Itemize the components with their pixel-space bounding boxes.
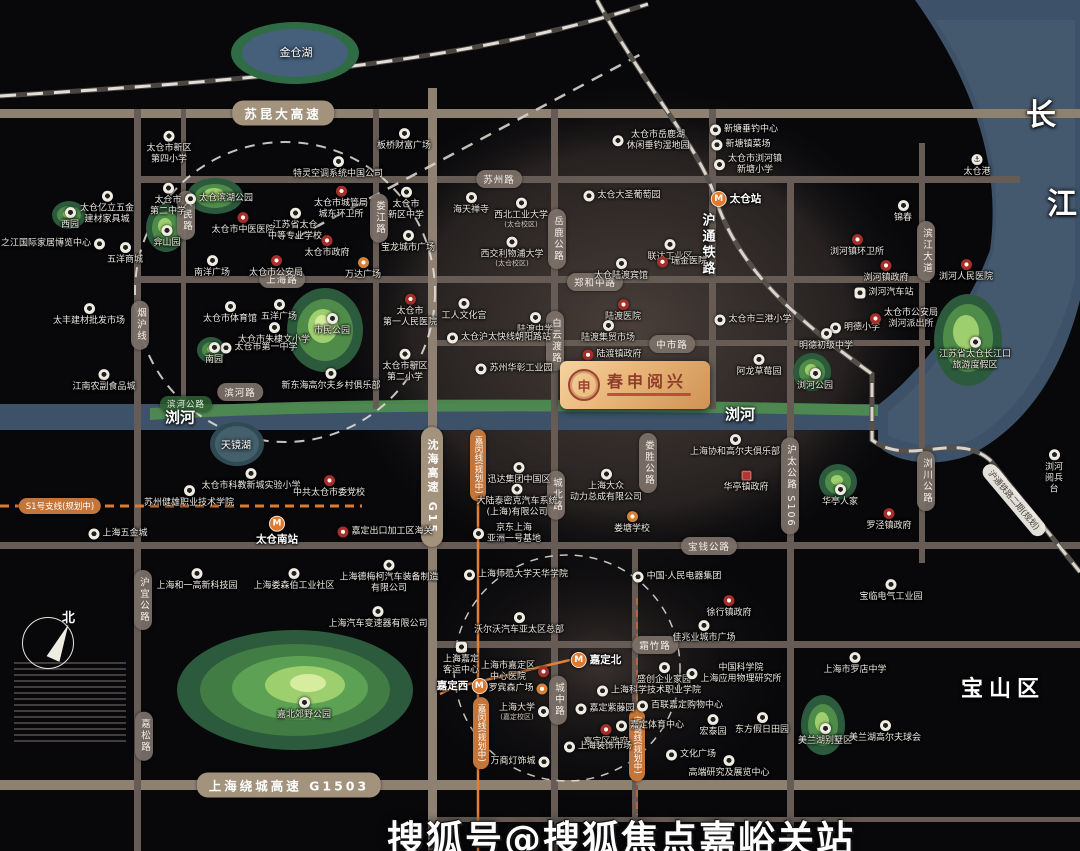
map-poi: 新塘垂钓中心 <box>710 125 778 136</box>
place-marker-icon <box>1049 449 1060 460</box>
place-marker-icon <box>245 468 256 479</box>
poi-label: 嘉定出口加工区海关 <box>351 527 432 538</box>
area-label: 宝山区 <box>961 671 1045 703</box>
poi-label: 南园 <box>205 355 223 366</box>
poi-label: 浏河公园 <box>797 381 833 392</box>
government-marker-icon <box>723 595 734 606</box>
poi-label: 海天禅寺 <box>453 205 489 216</box>
place-marker-icon <box>119 242 130 253</box>
place-marker-icon <box>597 686 608 697</box>
place-marker-icon <box>224 301 235 312</box>
map-poi: 浏河汽车站 <box>854 288 913 299</box>
place-marker-icon <box>849 652 860 663</box>
place-marker-icon <box>458 298 469 309</box>
map-poi: 板桥财富广场 <box>377 128 431 152</box>
place-marker-icon <box>602 320 613 331</box>
place-marker-icon <box>399 349 410 360</box>
poi-label: 特灵空调系统中国公司 <box>293 169 383 180</box>
bus-station-icon <box>854 288 865 299</box>
poi-label: 新塘镇菜场 <box>725 140 770 151</box>
map-poi: 娄塘学校 <box>614 511 650 535</box>
poi-label: 明德初级中学 <box>799 341 853 352</box>
map-poi: 中共太仓市委党校 <box>293 475 365 499</box>
poi-label: 太仓市新区 第四小学 <box>146 144 191 166</box>
map-poi: 佳兆业城市广场 <box>672 620 735 644</box>
place-marker-icon <box>637 701 648 712</box>
government-marker-icon <box>960 259 971 270</box>
map-poi: 高端研究及展览中心 <box>688 755 769 779</box>
map-poi: 华亭人家 <box>822 484 858 508</box>
poi-label: 浏河人民医院 <box>939 272 993 283</box>
government-marker-icon <box>657 257 668 268</box>
poi-label: 宝龙城市广场 <box>381 243 435 254</box>
government-marker-icon <box>323 475 334 486</box>
disclaimer-text-block <box>14 662 126 746</box>
place-marker-icon <box>969 337 980 348</box>
poi-label: 太仓市公安局 浏河派出所 <box>884 308 938 330</box>
poi-label: 娄塘学校 <box>614 524 650 535</box>
place-marker-icon <box>834 484 845 495</box>
map-poi: 南洋广场 <box>194 255 230 279</box>
government-marker-icon <box>321 235 332 246</box>
map-poi: 宏泰园 <box>699 714 726 738</box>
place-marker-icon <box>372 606 383 617</box>
map-poi: 大陆泰密克汽车系统 (上海)有限公司 <box>476 484 557 519</box>
poi-label: 嘉定紫藤园 <box>589 704 634 715</box>
place-marker-icon <box>332 156 343 167</box>
place-marker-icon <box>698 620 709 631</box>
poi-label: 江南农副食品城 <box>72 382 135 393</box>
road-label: 沪通铁路二期(规划) <box>979 461 1048 539</box>
place-marker-icon <box>83 303 94 314</box>
place-marker-icon <box>398 128 409 139</box>
poi-label: 西园 <box>61 220 79 231</box>
place-marker-icon <box>298 697 309 708</box>
place-marker-icon <box>714 160 725 171</box>
poi-label: 徐行镇政府 <box>706 608 751 619</box>
area-label: 浏河 <box>165 407 195 428</box>
map-poi: 罗宾森广场 <box>488 684 547 695</box>
poi-label: 板桥财富广场 <box>377 141 431 152</box>
place-marker-icon <box>612 136 623 147</box>
poi-label: 工人文化宫 <box>441 311 486 322</box>
map-poi: 中国·人民电器集团 <box>633 572 722 583</box>
place-marker-icon <box>185 194 196 205</box>
place-marker-icon <box>183 485 194 496</box>
poi-label: 太仓亿立五金 建材家具城 <box>80 204 134 226</box>
poi-label: 南洋广场 <box>194 268 230 279</box>
place-marker-icon <box>506 237 517 248</box>
map-poi: 上海市嘉定区 中心医院 <box>481 661 549 683</box>
map-poi: 中国科学院 上海应用物理研究所 <box>686 663 781 685</box>
map-poi: 太仓市公安局 浏河派出所 <box>870 308 938 330</box>
map-poi: 东方假日田园 <box>735 712 789 736</box>
map-poi: 美兰湖别墅区 <box>798 723 852 747</box>
poi-label: 太仓滨湖公园 <box>199 194 253 205</box>
map-poi: 阿龙草莓园 <box>736 354 781 378</box>
poi-label: 上海市嘉定区 中心医院 <box>481 661 535 683</box>
poi-sublabel: (嘉定校区) <box>500 714 533 721</box>
place-marker-icon <box>402 230 413 241</box>
place-marker-icon <box>268 322 279 333</box>
location-map: 苏昆大高速上海绕城高速 G1503沈海高速 G15苏州路上海路郑和中路中市路宝钱… <box>0 0 1080 851</box>
place-marker-icon <box>191 568 202 579</box>
map-poi: 嘉定体育中心 <box>616 721 684 732</box>
place-marker-icon <box>809 368 820 379</box>
poi-label: 罗宾森广场 <box>488 684 533 695</box>
bus-station-icon <box>455 642 466 653</box>
road-label: S1号支线(规划中) <box>19 498 101 514</box>
map-poi: 新塘镇菜场 <box>711 140 770 151</box>
poi-label: 盛创企业家园 <box>637 675 691 686</box>
metro-station-icon: M <box>269 516 285 532</box>
place-marker-icon <box>723 755 734 766</box>
road-label: 滨江大道 <box>917 221 935 281</box>
poi-label: 京东上海 亚洲一号基地 <box>487 523 541 545</box>
place-marker-icon <box>473 529 484 540</box>
map-poi: 五洋广场 <box>261 299 297 323</box>
poi-label: 中共太仓市委党校 <box>293 488 365 499</box>
map-poi: 上海师范大学天华学院 <box>464 570 568 581</box>
map-poi: 上海嘉定 客运中心 <box>443 642 479 677</box>
mall-marker-icon <box>357 257 368 268</box>
poi-label: 上海师范大学天华学院 <box>478 570 568 581</box>
poi-label: 沃尔沃汽车亚太区总部 <box>474 625 564 636</box>
poi-label: 太仓市 第一人民医院 <box>383 307 437 329</box>
road-label: 沪宜公路 <box>134 570 152 630</box>
mall-marker-icon <box>537 684 548 695</box>
area-label: 江 <box>1047 179 1077 223</box>
map-poi: 浏河阅兵台 <box>1041 449 1067 494</box>
poi-label: 太仓陆渡宾馆 <box>594 271 648 282</box>
map-poi: 华亭镇政府 <box>723 471 768 494</box>
government-marker-icon <box>237 212 248 223</box>
map-label-layer: 苏昆大高速上海绕城高速 G1503沈海高速 G15苏州路上海路郑和中路中市路宝钱… <box>0 0 1080 851</box>
map-poi: 上海大众 动力总成有限公司 <box>570 469 642 504</box>
map-poi: 太仓市政府 <box>304 235 349 259</box>
poi-label: 上海汽车变速器有限公司 <box>328 619 427 630</box>
poi-label: 浏河镇政府 <box>863 273 908 284</box>
map-poi: 弇山园 <box>153 225 180 249</box>
compass: 北 <box>22 613 78 669</box>
map-poi: 苏州健雄职业技术学院 <box>144 485 234 509</box>
place-marker-icon <box>325 368 336 379</box>
compass-north-label: 北 <box>62 607 75 626</box>
government-marker-icon <box>538 667 549 678</box>
government-marker-icon <box>851 234 862 245</box>
poi-label: 锦春 <box>894 213 912 224</box>
port-anchor-icon: ⚓ <box>971 154 982 165</box>
place-marker-icon <box>583 191 594 202</box>
place-marker-icon <box>564 742 575 753</box>
poi-label: 中国·人民电器集团 <box>647 572 722 583</box>
map-poi: 上海五金城 <box>88 529 147 540</box>
place-marker-icon <box>400 187 411 198</box>
poi-label: 瑞金医院 <box>671 257 707 268</box>
mall-marker-icon <box>626 511 637 522</box>
map-poi: 万达广场 <box>345 257 381 281</box>
poi-label: 太仓市中医医院 <box>211 225 274 236</box>
map-poi: 上海德梅柯汽车装备制造 有限公司 <box>339 560 438 595</box>
map-poi: 嘉定出口加工区海关 <box>337 527 432 538</box>
poi-label: 太仓市浏河镇 新塘小学 <box>728 154 782 176</box>
poi-label: 嘉定西 <box>437 680 469 693</box>
road-label: 霜竹路 <box>632 636 678 654</box>
place-marker-icon <box>326 313 337 324</box>
poi-label: 上海娄森伯工业社区 <box>253 581 334 592</box>
metro-station-icon: M <box>471 678 487 694</box>
place-marker-icon <box>511 484 522 495</box>
place-marker-icon <box>575 704 586 715</box>
road-label: 滨河路 <box>217 383 263 401</box>
place-marker-icon <box>658 662 669 673</box>
place-marker-icon <box>616 721 627 732</box>
place-marker-icon <box>753 354 764 365</box>
road-label: 烟沪线 <box>131 301 149 350</box>
poi-label: 太仓市 新区中学 <box>388 200 424 222</box>
map-poi: 苏州华彰工业园 <box>475 364 552 375</box>
poi-label: 太仓市政府 <box>304 248 349 259</box>
place-marker-icon <box>707 714 718 725</box>
map-poi: 嘉北郊野公园 <box>277 697 331 721</box>
poi-label: 美兰湖高尔夫球会 <box>849 733 921 744</box>
government-marker-icon <box>337 527 348 538</box>
place-marker-icon <box>539 757 550 768</box>
place-marker-icon <box>475 364 486 375</box>
poi-label: 嘉定体育中心 <box>630 721 684 732</box>
poi-label: 陆渡集贸市场 <box>581 333 635 344</box>
map-poi: 陆渡集贸市场 <box>581 320 635 344</box>
map-poi: 太仓市新区 第二小学 <box>382 349 427 384</box>
government-marker-icon <box>335 186 346 197</box>
map-poi: M嘉定北 <box>571 652 622 668</box>
government-marker-icon <box>617 299 628 310</box>
place-marker-icon <box>819 723 830 734</box>
map-poi: 太仓大圣葡萄园 <box>583 191 660 202</box>
place-marker-icon <box>897 200 908 211</box>
government-marker-icon <box>600 724 611 735</box>
place-marker-icon <box>64 207 75 218</box>
map-poi: 明德初级中学 <box>799 328 853 352</box>
place-marker-icon <box>513 612 524 623</box>
poi-label: 百联嘉定购物中心 <box>651 701 723 712</box>
map-poi: 上海娄森伯工业社区 <box>253 568 334 592</box>
government-marker-icon <box>582 350 593 361</box>
poi-label: 浏河阅兵台 <box>1041 462 1067 494</box>
map-poi: 西交利物浦大学(太仓校区) <box>480 237 543 268</box>
map-poi: 瑞金医院 <box>657 257 707 268</box>
poi-label: 上海和一高新科技园 <box>156 581 237 592</box>
map-poi: 浏河镇环卫所 <box>830 234 884 258</box>
place-marker-icon <box>447 333 458 344</box>
map-poi: 上海汽车变速器有限公司 <box>328 606 427 630</box>
road-label: 浏川公路 <box>917 451 935 511</box>
road-label: 岳鹿公路 <box>548 209 566 269</box>
poi-label: 佳兆业城市广场 <box>672 633 735 644</box>
map-poi: 罗泾镇政府 <box>866 508 911 532</box>
place-marker-icon <box>538 706 549 717</box>
poi-label: 太仓市第一中学 <box>234 343 297 354</box>
map-poi: 南园 <box>205 342 223 366</box>
place-marker-icon <box>711 140 722 151</box>
place-marker-icon <box>88 529 99 540</box>
poi-label: 太仓港 <box>963 167 990 178</box>
map-poi: 太仓市第一中学 <box>220 343 297 354</box>
poi-label: 万达广场 <box>345 270 381 281</box>
project-logo-title: 春申阅兴 <box>607 374 691 390</box>
poi-label: 江苏省太仓长江口 旅游度假区 <box>939 350 1011 372</box>
map-poi: ⚓太仓港 <box>963 154 990 178</box>
place-marker-icon <box>515 198 526 209</box>
map-poi: 锦春 <box>894 200 912 224</box>
place-marker-icon <box>664 239 675 250</box>
poi-label: 市民公园 <box>314 326 350 337</box>
map-poi: 宝临电气工业园 <box>859 579 922 603</box>
map-poi: 太丰建材批发市场 <box>53 303 125 327</box>
map-poi: 太仓市 新区中学 <box>388 187 424 222</box>
poi-label: 嘉定北 <box>590 654 622 667</box>
road-label: 沪太公路 S106 <box>781 437 799 534</box>
poi-label: 太仓市公安局 <box>249 268 303 279</box>
map-poi: 盛创企业家园 <box>637 662 691 686</box>
poi-label: 太仓市三港小学 <box>728 315 791 326</box>
map-poi: 太仓市 第二中学 <box>150 183 186 218</box>
map-poi: 太仓滨湖公园 <box>185 194 253 205</box>
poi-label: 嘉北郊野公园 <box>277 710 331 721</box>
place-marker-icon <box>273 299 284 310</box>
place-marker-icon <box>161 225 172 236</box>
map-poi: 特灵空调系统中国公司 <box>293 156 383 180</box>
government-marker-icon <box>883 508 894 519</box>
map-poi: 浏河镇政府 <box>863 260 908 284</box>
map-poi: 太仓陆渡宾馆 <box>594 258 648 282</box>
poi-label: 太仓市岳鹿湖 休闲垂钓湿地园 <box>626 130 689 152</box>
road-label: 上海绕城高速 G1503 <box>197 773 381 798</box>
map-poi: 沃尔沃汽车亚太区总部 <box>474 612 564 636</box>
town-hall-icon <box>741 471 751 481</box>
map-poi: M太仓站 <box>711 191 762 207</box>
poi-label: 上海装饰市场 <box>578 742 632 753</box>
place-marker-icon <box>666 750 677 761</box>
road-label: 宝钱公路 <box>681 537 737 555</box>
project-seal-icon: 申 <box>568 369 600 401</box>
map-poi: 京东上海 亚洲一号基地 <box>473 523 541 545</box>
poi-label: 华亭镇政府 <box>723 483 768 494</box>
map-poi: 美兰湖高尔夫球会 <box>849 720 921 744</box>
poi-label: 上海市罗店中学 <box>823 665 886 676</box>
government-marker-icon <box>270 255 281 266</box>
poi-label: 上海协和高尔夫俱乐部 <box>690 447 780 458</box>
area-label: 金仓湖 <box>280 44 313 60</box>
map-poi: 嘉定紫藤园 <box>575 704 634 715</box>
area-label: 浏河 <box>725 404 755 425</box>
poi-label: 宝临电气工业园 <box>859 592 922 603</box>
map-poi: 西北工业大学(太仓校区) <box>494 198 548 229</box>
place-marker-icon <box>820 328 831 339</box>
map-poi: 浏河人民医院 <box>939 259 993 283</box>
area-label: 天镜湖 <box>221 437 251 452</box>
poi-label: 大陆泰密克汽车系统 (上海)有限公司 <box>476 497 557 519</box>
map-poi: 太仓市新区 第四小学 <box>146 131 191 166</box>
poi-sublabel: (太仓校区) <box>504 221 537 228</box>
map-poi: 百联嘉定购物中心 <box>637 701 723 712</box>
poi-label: 之江国际家居博览中心 <box>1 239 91 250</box>
poi-label: 华亭人家 <box>822 497 858 508</box>
map-poi: 上海和一高新科技园 <box>156 568 237 592</box>
map-poi: 工人文化宫 <box>441 298 486 322</box>
map-poi: 太仓市三港小学 <box>714 315 791 326</box>
poi-label: 新东海高尔夫乡村俱乐部 <box>281 381 380 392</box>
poi-label: 太仓市 第二中学 <box>150 196 186 218</box>
poi-label: 太仓站 <box>730 193 762 206</box>
place-marker-icon <box>208 342 219 353</box>
project-logo: 申 春申阅兴 <box>560 361 710 409</box>
poi-label: 上海嘉定 客运中心 <box>443 655 479 677</box>
road-label: 嘉松路 <box>135 712 153 761</box>
place-marker-icon <box>289 208 300 219</box>
poi-label: 太仓市新区 第二小学 <box>382 362 427 384</box>
poi-label: 浏河镇环卫所 <box>830 247 884 258</box>
map-poi: 新东海高尔夫乡村俱乐部 <box>281 368 380 392</box>
map-poi: 太仓市公安局 <box>249 255 303 279</box>
poi-label: 上海德梅柯汽车装备制造 有限公司 <box>339 573 438 595</box>
map-poi: 太仓市城管局 城东环卫所 <box>314 186 368 221</box>
map-poi: 徐行镇政府 <box>706 595 751 619</box>
road-label: 城中路 <box>549 676 567 725</box>
poi-label: 五洋商城 <box>107 255 143 266</box>
place-marker-icon <box>163 131 174 142</box>
map-poi: 上海装饰市场 <box>564 742 632 753</box>
map-poi: 太仓市浏河镇 新塘小学 <box>714 154 782 176</box>
place-marker-icon <box>885 579 896 590</box>
poi-label: 弇山园 <box>153 238 180 249</box>
map-poi: 太仓亿立五金 建材家具城 <box>80 191 134 226</box>
poi-label: 浏河汽车站 <box>868 288 913 299</box>
map-poi: 太仓沪太快线朝阳路站 <box>447 333 551 344</box>
map-poi: 陆渡镇政府 <box>582 350 641 361</box>
watermark: 搜狐号@搜狐焦点嘉峪关站 <box>387 809 855 851</box>
road-label: 苏州路 <box>476 170 522 188</box>
poi-label: 上海五金城 <box>102 529 147 540</box>
poi-label: 阿龙草莓园 <box>736 367 781 378</box>
map-poi: 万商灯饰城 <box>490 757 549 768</box>
map-poi: 太仓市中医医院 <box>211 212 274 236</box>
road-label: 苏昆大高速 <box>232 101 334 126</box>
place-marker-icon <box>600 469 611 480</box>
metro-station-icon: M <box>571 652 587 668</box>
poi-label: 万商灯饰城 <box>490 757 535 768</box>
place-marker-icon <box>101 191 112 202</box>
road-label: 中市路 <box>649 335 695 353</box>
place-marker-icon <box>756 712 767 723</box>
place-marker-icon <box>288 568 299 579</box>
government-marker-icon <box>404 294 415 305</box>
map-poi: 江南农副食品城 <box>72 369 135 393</box>
poi-sublabel: (太仓校区) <box>495 260 528 267</box>
poi-label: 太仓沪太快线朝阳路站 <box>461 333 551 344</box>
poi-label: 太仓南站 <box>256 534 298 547</box>
place-marker-icon <box>98 369 109 380</box>
map-poi: 太仓市岳鹿湖 休闲垂钓湿地园 <box>612 130 689 152</box>
poi-label: 新塘垂钓中心 <box>724 125 778 136</box>
place-marker-icon <box>94 239 105 250</box>
poi-label: 东方假日田园 <box>735 725 789 736</box>
poi-label: 美兰湖别墅区 <box>798 736 852 747</box>
map-poi: 上海协和高尔夫俱乐部 <box>690 434 780 458</box>
place-marker-icon <box>714 315 725 326</box>
place-marker-icon <box>464 570 475 581</box>
map-poi: 五洋商城 <box>107 242 143 266</box>
